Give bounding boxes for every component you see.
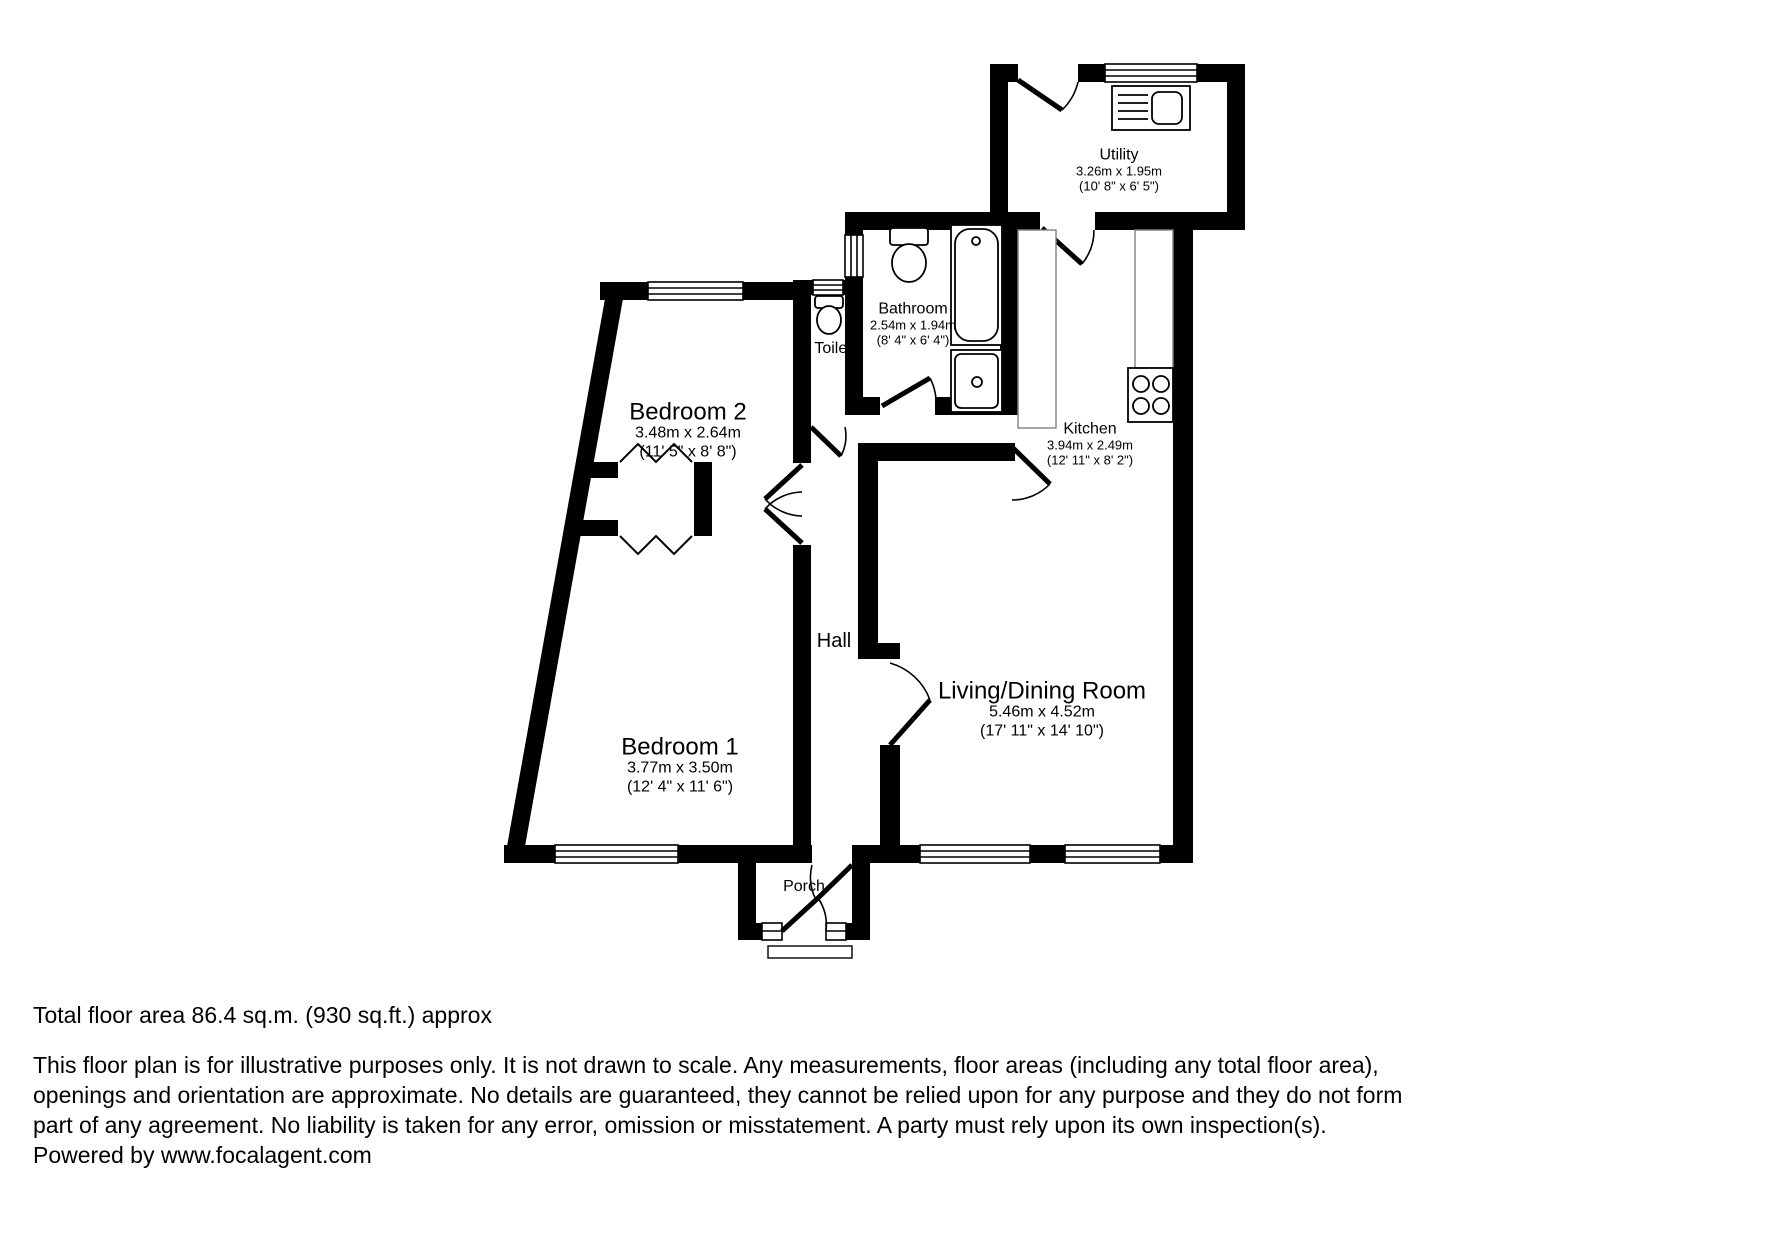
- disclaimer-line-4: Powered by www.focalagent.com: [33, 1140, 1402, 1170]
- hob-icon: [1128, 368, 1173, 422]
- room-label-utility: Utility 3.26m x 1.95m (10' 8" x 6' 5"): [1076, 147, 1162, 194]
- door-toilet: [811, 427, 846, 456]
- room-label-hall: Hall: [817, 631, 851, 651]
- window-porch-right: [826, 923, 846, 940]
- room-label-bedroom1: Bedroom 1 3.77m x 3.50m (12' 4" x 11' 6"…: [621, 736, 738, 797]
- door-living: [890, 663, 930, 745]
- door-bedroom2: [765, 465, 802, 516]
- doors: [620, 80, 1094, 931]
- door-bathroom: [882, 378, 936, 406]
- window-living-2: [1065, 845, 1160, 863]
- door-bedroom1: [765, 492, 802, 543]
- door-porch-front: [782, 898, 826, 931]
- window-bedroom1: [555, 845, 678, 863]
- window-porch-left: [762, 923, 782, 940]
- bathtub-icon: [951, 225, 1002, 345]
- porch-step: [768, 946, 852, 958]
- room-label-kitchen: Kitchen 3.94m x 2.49m (12' 11" x 8' 2"): [1047, 421, 1133, 468]
- room-label-living-dining: Living/Dining Room 5.46m x 4.52m (17' 11…: [938, 680, 1146, 741]
- window-bathroom: [845, 235, 863, 277]
- door-utility-exterior: [1018, 80, 1078, 110]
- window-bedroom2: [648, 282, 743, 300]
- room-label-porch: Porch: [783, 877, 825, 897]
- disclaimer-line-3: part of any agreement. No liability is t…: [33, 1110, 1402, 1140]
- window-toilet: [813, 280, 843, 295]
- room-label-bathroom: Bathroom 2.54m x 1.94m (8' 4" x 6' 4"): [870, 301, 956, 348]
- toilet-icon-2: [815, 296, 843, 334]
- window-living-1: [920, 845, 1030, 863]
- total-floor-area-text: Total floor area 86.4 sq.m. (930 sq.ft.)…: [33, 1000, 492, 1030]
- disclaimer-line-1: This floor plan is for illustrative purp…: [33, 1050, 1402, 1080]
- toilet-icon: [890, 228, 928, 282]
- door-kitchen: [1012, 447, 1050, 500]
- disclaimer-line-2: openings and orientation are approximate…: [33, 1080, 1402, 1110]
- room-label-toilet: Toilet: [814, 339, 851, 359]
- disclaimer-text: This floor plan is for illustrative purp…: [33, 1050, 1402, 1170]
- room-label-bedroom2: Bedroom 2 3.48m x 2.64m (11' 5" x 8' 8"): [629, 401, 746, 462]
- window-utility: [1105, 64, 1197, 82]
- utility-sink-icon: [1112, 86, 1190, 130]
- walls: [504, 64, 1245, 940]
- floorplan-canvas: Utility 3.26m x 1.95m (10' 8" x 6' 5") B…: [0, 0, 1771, 1239]
- shower-icon: [951, 350, 1002, 412]
